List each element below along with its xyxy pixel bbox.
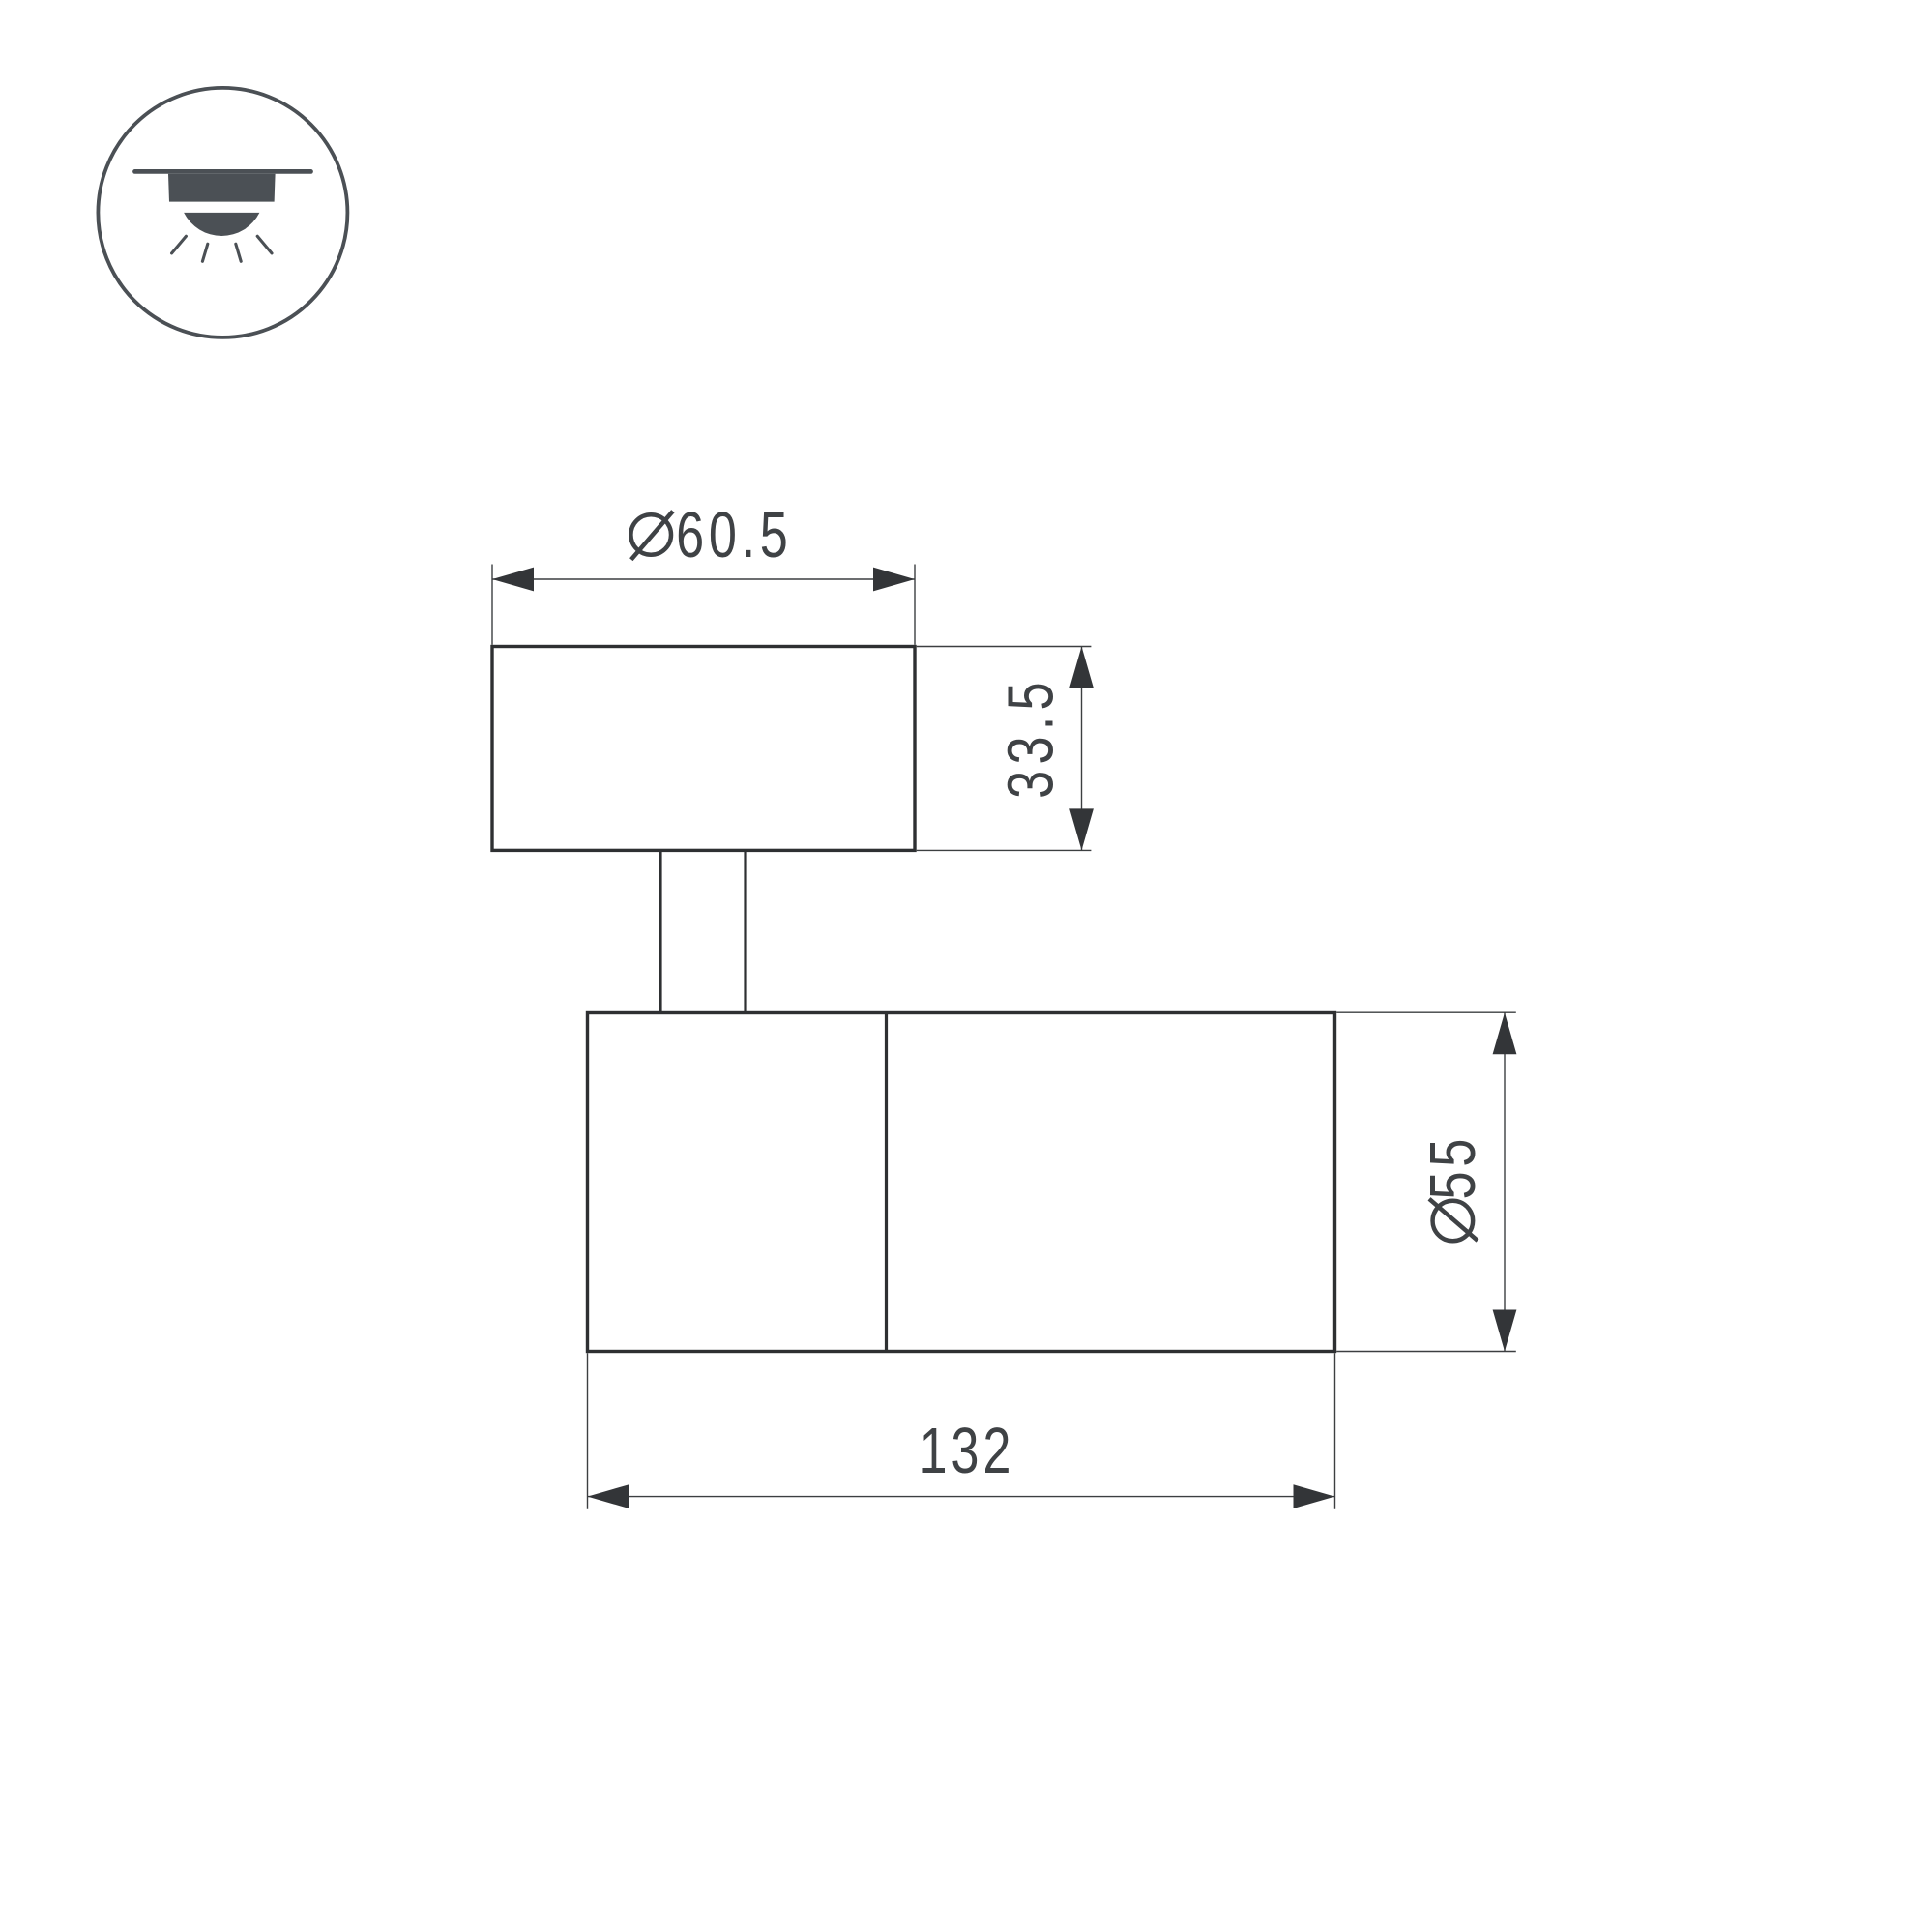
svg-text:60.5: 60.5 (676, 499, 792, 571)
svg-text:33.5: 33.5 (994, 676, 1067, 799)
svg-text:55: 55 (1417, 1134, 1489, 1199)
svg-text:132: 132 (919, 1415, 1014, 1487)
